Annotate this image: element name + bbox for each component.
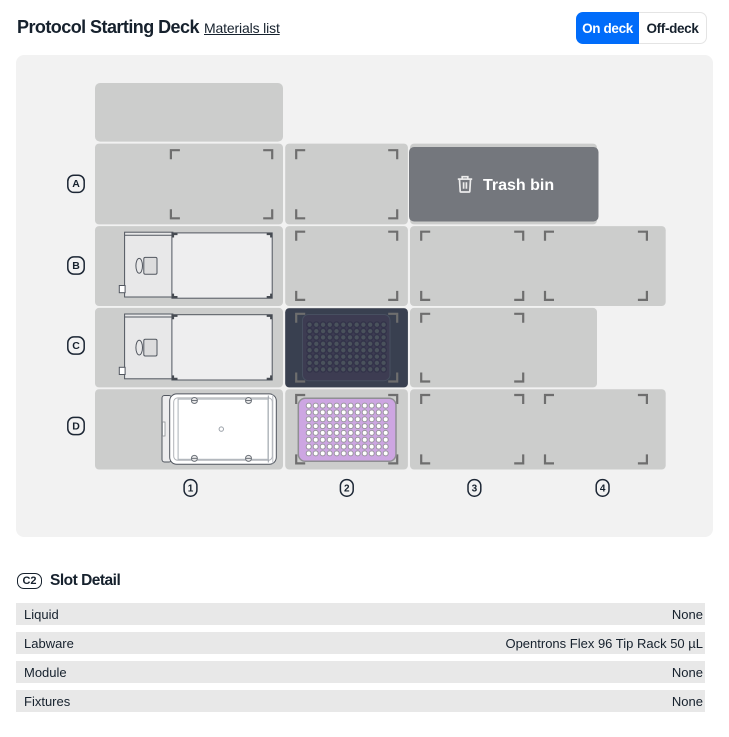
svg-text:1: 1 xyxy=(188,483,194,494)
svg-text:3: 3 xyxy=(472,483,478,494)
svg-text:Trash bin: Trash bin xyxy=(483,177,554,194)
svg-text:C: C xyxy=(72,340,80,352)
svg-text:D: D xyxy=(72,420,80,432)
svg-text:A: A xyxy=(72,178,80,190)
svg-text:B: B xyxy=(72,260,80,272)
svg-text:4: 4 xyxy=(600,483,606,494)
svg-text:2: 2 xyxy=(344,483,350,494)
